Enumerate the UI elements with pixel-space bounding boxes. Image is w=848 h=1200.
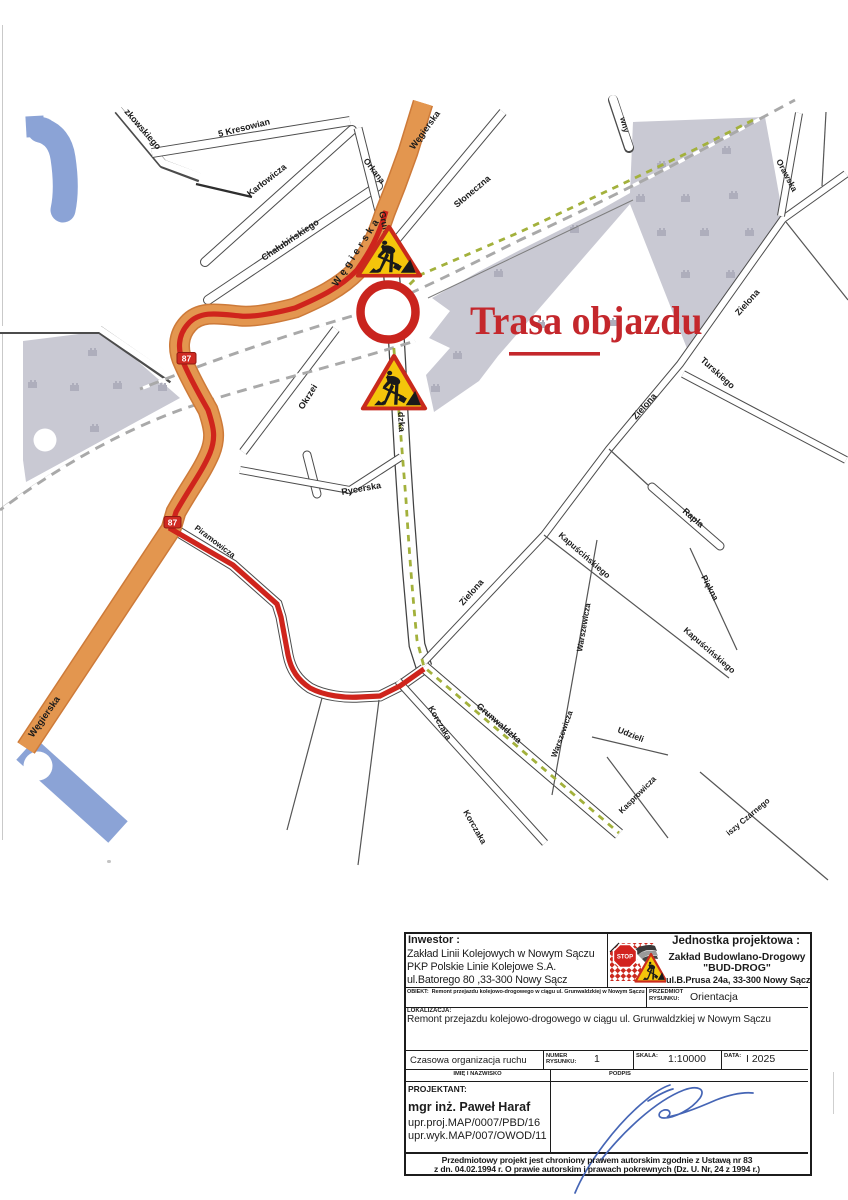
svg-text:Udzieli: Udzieli <box>616 725 645 745</box>
svg-text:Kasprowicza: Kasprowicza <box>617 774 658 815</box>
svg-text:Zielona: Zielona <box>733 286 762 317</box>
svg-text:Warszewicza: Warszewicza <box>575 602 592 652</box>
svg-text:Kapuścińskiego: Kapuścińskiego <box>557 530 613 580</box>
svg-text:iszy Czarnego: iszy Czarnego <box>725 796 772 838</box>
svg-text:dzka: dzka <box>396 412 407 433</box>
svg-text:Okrzei: Okrzei <box>296 382 319 411</box>
svg-text:Piękna: Piękna <box>699 573 721 602</box>
svg-text:Słoneczna: Słoneczna <box>452 173 493 210</box>
svg-text:Warszewicza: Warszewicza <box>549 709 574 759</box>
svg-text:Trasa objazdu: Trasa objazdu <box>470 299 703 343</box>
svg-text:Zielona: Zielona <box>630 390 659 421</box>
svg-text:87: 87 <box>182 354 192 364</box>
svg-text:Korczaka: Korczaka <box>461 808 489 846</box>
svg-text:Rycerska: Rycerska <box>341 480 383 497</box>
svg-text:Korczaka: Korczaka <box>426 704 454 742</box>
svg-text:STOP: STOP <box>617 955 633 961</box>
svg-text:87: 87 <box>168 518 178 528</box>
svg-text:Chałubińskiego: Chałubińskiego <box>260 217 322 263</box>
